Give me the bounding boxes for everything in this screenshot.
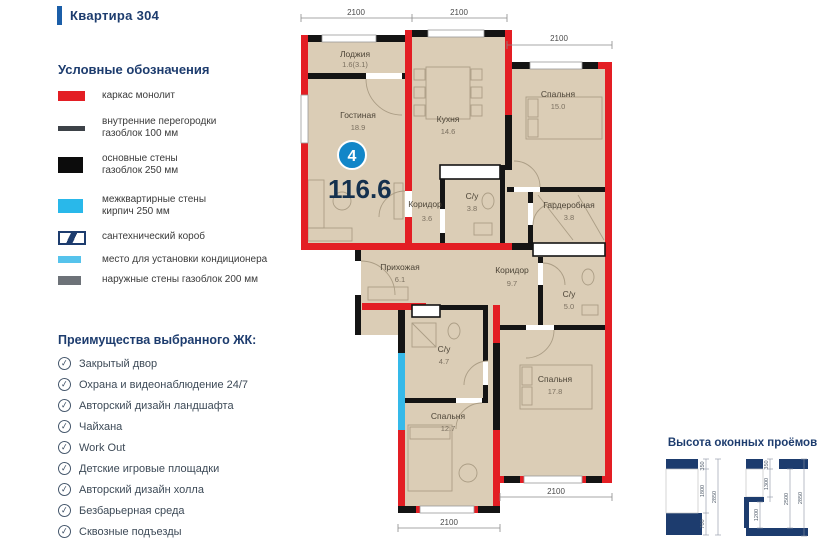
- win-right-dim-350: 350: [764, 460, 770, 469]
- room-area-kitchen: 14.6: [441, 127, 456, 136]
- win-left-dim-700: 700: [700, 519, 706, 528]
- apartment-title: Квартира 304: [70, 8, 159, 23]
- win-left-dim-350: 350: [700, 461, 706, 470]
- window-section-right: 350 1300 1200 2500 2850: [744, 459, 808, 536]
- advantage-item: ✓ Безбарьерная среда: [58, 504, 308, 517]
- legend-item-monolith: каркас монолит: [58, 90, 293, 103]
- advantage-label: Охрана и видеонаблюдение 24/7: [79, 379, 248, 391]
- legend-label: наружные стены газоблок 200 мм: [102, 274, 258, 287]
- advantage-label: Детские игровые площадки: [79, 463, 219, 475]
- advantage-label: Чайхана: [79, 421, 122, 433]
- advantage-label: Work Out: [79, 442, 125, 454]
- check-icon: ✓: [57, 503, 72, 518]
- room-label-bedroom-2: Спальня: [431, 411, 466, 421]
- legend-title: Условные обозначения: [58, 62, 293, 77]
- room-label-hallway: Прихожая: [380, 262, 420, 272]
- ac-swatch-icon: [58, 256, 81, 263]
- advantage-item: ✓ Work Out: [58, 441, 308, 454]
- room-area-corridor-2: 9.7: [507, 279, 517, 288]
- check-icon: ✓: [57, 419, 72, 434]
- room-area-corridor-1: 3.6: [422, 214, 432, 223]
- dim-top-left: 2100: [347, 8, 365, 17]
- check-icon: ✓: [57, 461, 72, 476]
- advantage-label: Безбарьерная среда: [79, 505, 185, 517]
- main-wall-swatch-icon: [58, 157, 83, 173]
- room-label-wardrobe: Гардеробная: [543, 200, 595, 210]
- win-right-dim-2500: 2500: [784, 493, 790, 505]
- advantage-label: Закрытый двор: [79, 358, 157, 370]
- room-area-bedroom-2: 12.7: [441, 424, 456, 433]
- room-label-kitchen: Кухня: [437, 114, 460, 124]
- legend-item-outer-walls: наружные стены газоблок 200 мм: [58, 274, 293, 287]
- dim-bottom-left: 2100: [440, 518, 458, 527]
- room-label-bedroom-3: Спальня: [538, 374, 573, 384]
- inter-apartment-swatch-icon: [58, 199, 83, 213]
- header: Квартира 304: [57, 6, 159, 25]
- check-icon: ✓: [57, 377, 72, 392]
- win-right-dim-1200: 1200: [754, 509, 760, 521]
- legend-label-line2: газоблок 100 мм: [102, 128, 216, 141]
- legend-label: место для установки кондиционера: [102, 254, 267, 267]
- room-area-living: 18.9: [351, 123, 366, 132]
- advantages-title: Преимущества выбранного ЖК:: [58, 333, 308, 347]
- plumbing-duct-swatch-icon: [58, 231, 86, 245]
- check-icon: ✓: [57, 524, 72, 539]
- advantage-item: ✓ Охрана и видеонаблюдение 24/7: [58, 378, 308, 391]
- room-area-bath-1: 3.8: [467, 204, 477, 213]
- advantage-label: Сквозные подъезды: [79, 526, 182, 538]
- advantage-item: ✓ Чайхана: [58, 420, 308, 433]
- floor-plan-svg: 2100 2100 2100 2100 2100 Лоджия 1.6(3.1)…: [288, 5, 668, 545]
- room-area-hallway: 6.1: [395, 275, 405, 284]
- dim-top-right: 2100: [550, 34, 568, 43]
- total-area: 116.6: [328, 174, 392, 204]
- window-heights-title: Высота оконных проёмов: [660, 437, 825, 449]
- room-label-bath-1: С/у: [466, 191, 480, 201]
- check-icon: ✓: [57, 356, 72, 371]
- monolith-swatch-icon: [58, 91, 85, 101]
- room-label-corridor-2: Коридор: [495, 265, 529, 275]
- partition-swatch-icon: [58, 126, 85, 131]
- legend-label-line2: газоблок 250 мм: [102, 165, 178, 178]
- room-area-loggia: 1.6(3.1): [342, 60, 368, 69]
- apartment-number: 4: [348, 148, 357, 165]
- advantage-item: ✓ Авторский дизайн ландшафта: [58, 399, 308, 412]
- legend-label-line2: кирпич 250 мм: [102, 206, 206, 219]
- dim-bottom-right: 2100: [547, 487, 565, 496]
- legend-label: внутренние перегородки: [102, 116, 216, 129]
- check-icon: ✓: [57, 482, 72, 497]
- room-fills: [301, 30, 612, 513]
- win-right-dim-2850: 2850: [798, 492, 804, 504]
- dim-top-center: 2100: [450, 8, 468, 17]
- advantage-item: ✓ Детские игровые площадки: [58, 462, 308, 475]
- room-label-bath-2: С/у: [563, 289, 577, 299]
- room-label-bedroom-1: Спальня: [541, 89, 576, 99]
- inter-apartment-wall: [398, 353, 405, 430]
- win-right-dim-1300: 1300: [764, 478, 770, 490]
- room-area-bedroom-1: 15.0: [551, 102, 566, 111]
- advantage-label: Авторский дизайн ландшафта: [79, 400, 234, 412]
- legend-label: основные стены: [102, 153, 178, 166]
- advantage-item: ✓ Сквозные подъезды: [58, 525, 308, 538]
- room-area-wardrobe: 3.8: [564, 213, 574, 222]
- legend-label: межквартирные стены: [102, 194, 206, 207]
- legend: Условные обозначения каркас монолит внут…: [58, 62, 293, 287]
- outer-wall-swatch-icon: [58, 276, 81, 285]
- header-accent-bar: [57, 6, 62, 25]
- legend-item-main-walls: основные стены газоблок 250 мм: [58, 153, 293, 178]
- apartment-number-badge: 4: [338, 141, 366, 169]
- room-area-bath-3: 4.7: [439, 357, 449, 366]
- legend-item-ac: место для установки кондиционера: [58, 254, 293, 267]
- window-section-left: 350 1800 700 2850: [666, 459, 721, 535]
- legend-item-inter-apartment: межквартирные стены кирпич 250 мм: [58, 194, 293, 219]
- room-label-bath-3: С/у: [438, 344, 452, 354]
- window-heights: Высота оконных проёмов 350 1800 700 2850: [660, 437, 825, 546]
- room-label-loggia: Лоджия: [340, 49, 371, 59]
- advantage-item: ✓ Авторский дизайн холла: [58, 483, 308, 496]
- check-icon: ✓: [57, 398, 72, 413]
- room-label-corridor-1: Коридор: [408, 199, 442, 209]
- legend-item-plumbing-duct: сантехнический короб: [58, 231, 293, 245]
- room-area-bedroom-3: 17.8: [548, 387, 563, 396]
- window-heights-svg: 350 1800 700 2850 35: [660, 453, 825, 545]
- win-left-dim-2850: 2850: [712, 491, 718, 503]
- room-label-living: Гостиная: [340, 110, 376, 120]
- win-left-dim-1800: 1800: [700, 485, 706, 497]
- floor-plan: 2100 2100 2100 2100 2100 Лоджия 1.6(3.1)…: [288, 5, 668, 545]
- advantages: Преимущества выбранного ЖК: ✓ Закрытый д…: [58, 333, 308, 538]
- legend-item-partitions: внутренние перегородки газоблок 100 мм: [58, 116, 293, 141]
- floor-plan-sheet: Квартира 304 Условные обозначения каркас…: [0, 0, 827, 546]
- room-area-bath-2: 5.0: [564, 302, 574, 311]
- advantage-label: Авторский дизайн холла: [79, 484, 204, 496]
- legend-label: каркас монолит: [102, 90, 175, 103]
- check-icon: ✓: [57, 440, 72, 455]
- legend-label: сантехнический короб: [102, 231, 205, 244]
- advantage-item: ✓ Закрытый двор: [58, 357, 308, 370]
